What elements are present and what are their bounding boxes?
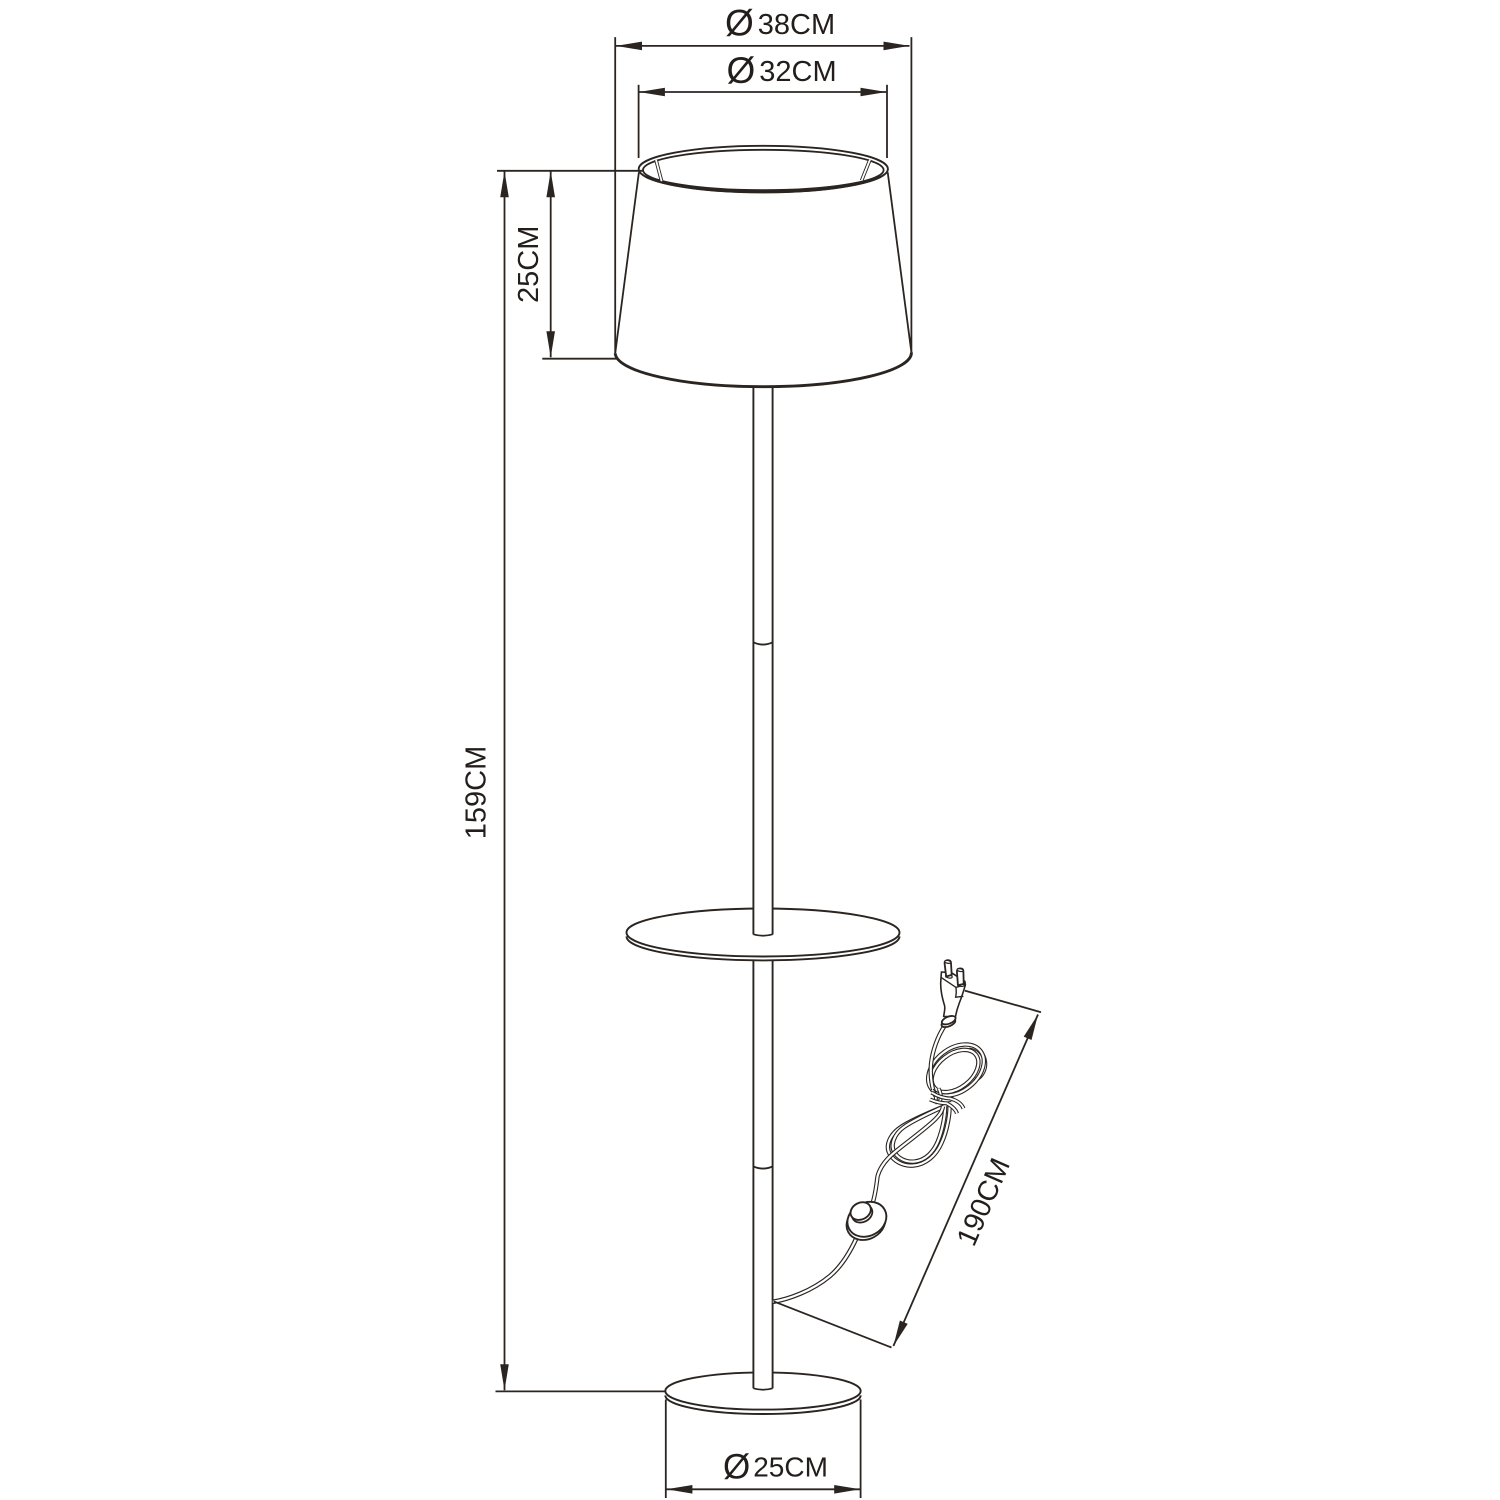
svg-text:Ø25CM: Ø25CM	[723, 1448, 828, 1487]
svg-text:25CM: 25CM	[513, 226, 545, 303]
svg-text:Ø38CM: Ø38CM	[725, 3, 835, 44]
svg-text:159CM: 159CM	[460, 746, 492, 840]
svg-text:Ø32CM: Ø32CM	[727, 50, 837, 91]
